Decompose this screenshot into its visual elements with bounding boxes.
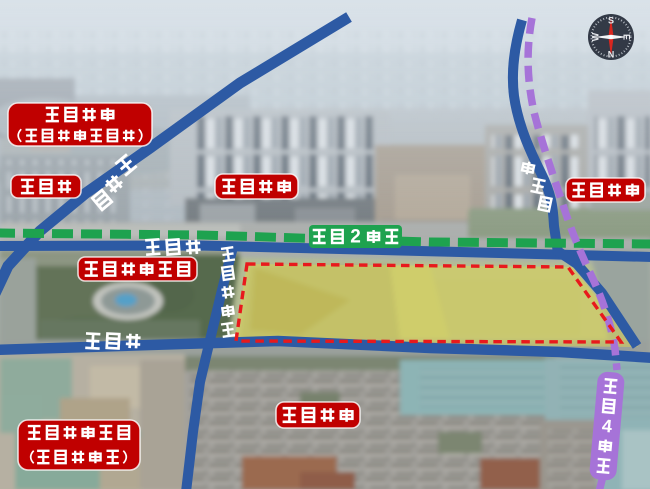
svg-text:E: E bbox=[622, 34, 632, 40]
svg-text:W: W bbox=[591, 32, 601, 41]
svg-text:S: S bbox=[608, 16, 614, 26]
svg-text:4: 4 bbox=[601, 416, 613, 437]
svg-text:2: 2 bbox=[350, 227, 361, 248]
svg-text:N: N bbox=[608, 50, 615, 60]
